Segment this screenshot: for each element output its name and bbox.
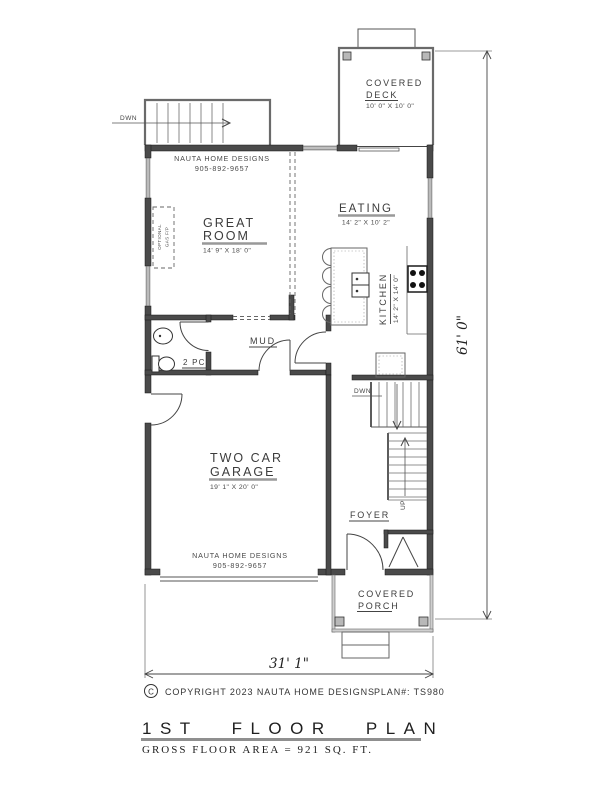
closet xyxy=(384,530,433,567)
fireplace-label-2: GAS F/P xyxy=(165,227,170,247)
powder-room-door xyxy=(180,322,209,351)
toilet xyxy=(152,356,175,372)
garage-door xyxy=(160,577,318,581)
stool-3 xyxy=(323,287,332,304)
porch-post-left xyxy=(335,617,344,626)
firm-name-bottom: NAUTA HOME DESIGNS xyxy=(192,551,288,560)
depth-dimension-label: 61' 0" xyxy=(455,315,471,355)
foyer-label: FOYER xyxy=(350,510,390,520)
copyright-text: COPYRIGHT 2023 NAUTA HOME DESIGNS xyxy=(165,687,375,697)
garage-dims: 19' 1" X 20' 0" xyxy=(210,484,258,491)
front-door xyxy=(347,534,383,570)
stool-1 xyxy=(323,249,332,266)
floor-plan-sheet: COVERED DECK 10' 0" X 10' 0" DWN xyxy=(0,0,612,792)
firm-phone-top: 905-892-9657 xyxy=(195,164,249,173)
kitchen: KITCHEN 14' 2" X 14' 0" xyxy=(323,246,428,377)
foyer: FOYER xyxy=(349,510,390,521)
bathroom-sink xyxy=(154,328,173,344)
stool-2 xyxy=(323,268,332,285)
deck-dims: 10' 0" X 10' 0" xyxy=(366,103,414,110)
mud-to-foyer-door xyxy=(295,332,326,363)
window-great-room-left-2 xyxy=(146,266,150,306)
garage: TWO CAR GARAGE 19' 1" X 20' 0" NAUTA HOM… xyxy=(192,451,288,570)
interior-stairs-dwn-label: DWN xyxy=(354,388,371,395)
exterior-stairs-outline xyxy=(145,100,270,145)
exterior-stairs-dwn-label: DWN xyxy=(120,115,137,122)
firm-phone-bottom: 905-892-9657 xyxy=(213,561,267,570)
deck-label-2: DECK xyxy=(366,90,398,100)
eating-label: EATING xyxy=(339,203,393,215)
garage-side-door xyxy=(151,394,182,425)
closet-door-leaf-2 xyxy=(403,537,418,567)
copyright-symbol: C xyxy=(148,688,154,697)
window-eating-right xyxy=(428,178,432,218)
gross-area-text: GROSS FLOOR AREA = 921 SQ. FT. xyxy=(142,744,373,756)
covered-porch: COVERED PORCH xyxy=(332,575,433,658)
exterior-stairs: DWN xyxy=(112,100,270,145)
deck-label-1: COVERED xyxy=(366,78,423,88)
garage-label-2: GARAGE xyxy=(210,465,276,479)
porch-step-1 xyxy=(342,632,389,645)
island-sink xyxy=(352,273,369,297)
mud-label: MUD xyxy=(250,336,276,346)
chimney-box xyxy=(358,29,415,48)
footer: C COPYRIGHT 2023 NAUTA HOME DESIGNS PLAN… xyxy=(141,685,445,757)
mud-room: MUD xyxy=(249,336,277,347)
kitchen-dims: 14' 2" X 14' 0" xyxy=(393,275,400,323)
plan-number: PLAN#: TS980 xyxy=(374,687,445,697)
porch-post-right xyxy=(419,617,428,626)
great-room-dims: 14' 9" X 18' 0" xyxy=(203,248,251,255)
porch-step-2 xyxy=(342,645,389,658)
eating-area: EATING 14' 2" X 10' 2" xyxy=(338,203,395,227)
porch-label-2: PORCH xyxy=(358,601,400,611)
kitchen-label: KITCHEN xyxy=(378,273,388,325)
optional-fireplace: OPTIONAL GAS F/P xyxy=(153,207,174,268)
sheet-title: 1ST FLOOR PLAN xyxy=(142,719,444,738)
porch-label-1: COVERED xyxy=(358,589,415,599)
powder-room: 2 PC xyxy=(152,328,207,372)
window-great-room-left-1 xyxy=(146,158,150,198)
foyer-stairs: DWN UP xyxy=(352,382,427,510)
great-room-label-1: GREAT xyxy=(203,216,255,230)
floor-plan-drawing: COVERED DECK 10' 0" X 10' 0" DWN xyxy=(0,0,612,792)
covered-deck: COVERED DECK 10' 0" X 10' 0" xyxy=(339,29,433,145)
powder-room-label: 2 PC xyxy=(183,358,206,367)
fridge xyxy=(376,353,405,377)
deck-post-left xyxy=(343,52,351,60)
width-dimension-label: 31' 1" xyxy=(269,656,309,672)
deck-post-right xyxy=(422,52,430,60)
cooktop xyxy=(408,266,427,292)
dimension-depth: 61' 0" xyxy=(435,51,492,619)
great-room-label-2: ROOM xyxy=(203,229,250,243)
closet-door-leaf-1 xyxy=(389,537,403,567)
fireplace-label-1: OPTIONAL xyxy=(157,224,162,250)
patio-door xyxy=(357,147,428,152)
great-room: NAUTA HOME DESIGNS 905-892-9657 GREAT RO… xyxy=(153,152,295,314)
garage-label-1: TWO CAR xyxy=(210,451,283,465)
window-great-room-top xyxy=(303,146,337,150)
stairs-up-label: UP xyxy=(400,500,407,510)
firm-name-top: NAUTA HOME DESIGNS xyxy=(174,154,270,163)
eating-dims: 14' 2" X 10' 2" xyxy=(342,220,390,227)
